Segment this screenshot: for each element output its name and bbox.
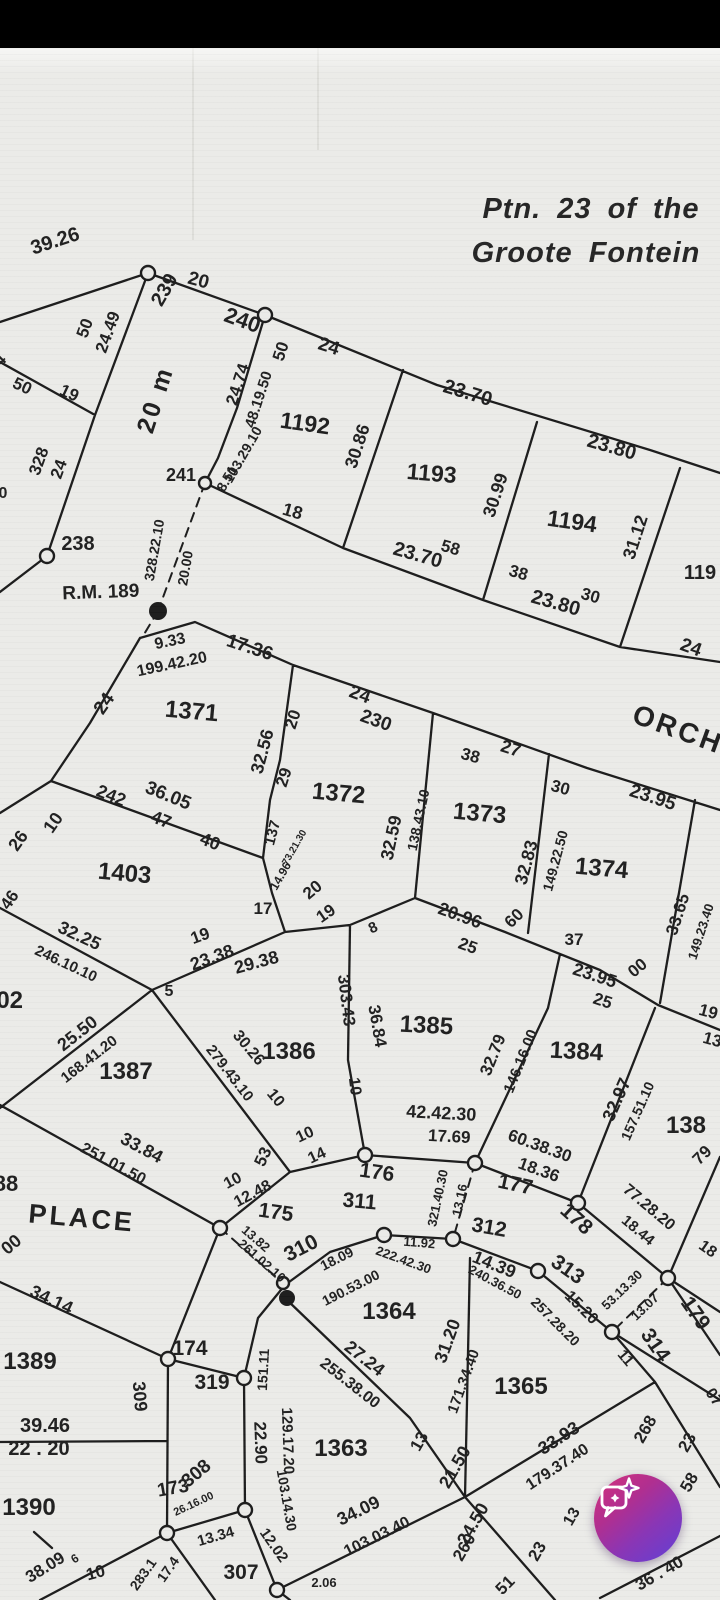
survey-stamp-dot	[279, 1290, 295, 1306]
parcel-number-label: 1385	[399, 1011, 454, 1041]
parcel-number-label: 1390	[2, 1494, 55, 1521]
parcel-number-label: 1387	[99, 1058, 152, 1085]
dimension-label: 17.69	[428, 1126, 471, 1147]
beacon-number-label: 238	[61, 533, 94, 555]
plan-title-line2: Groote Fontein	[472, 237, 701, 269]
reference-mark-dot	[149, 602, 167, 620]
dimension-label: 39.46	[20, 1415, 70, 1437]
assistant-fab[interactable]	[594, 1474, 682, 1562]
beacon-number-label: 241	[166, 465, 196, 485]
parcel-number-label: 1384	[549, 1037, 604, 1067]
parcel-number-label: 402	[0, 987, 23, 1014]
parcel-number-label: 1193	[406, 458, 458, 488]
dimension-label: 0	[0, 485, 8, 502]
dimension-label: 2.06	[311, 1575, 336, 1590]
beacon-number-label: 309	[129, 1381, 152, 1413]
beacon-number-label: 307	[223, 1561, 258, 1584]
parcel-number-label: 1364	[362, 1298, 416, 1325]
dimension-label: 10	[345, 1077, 364, 1097]
parcel-number-label: 1371	[164, 696, 220, 728]
dimension-label: 22.90	[250, 1421, 270, 1464]
status-bar	[0, 0, 720, 48]
parcel-number-label: 1372	[311, 778, 367, 810]
dimension-label: 129.17.20	[278, 1407, 297, 1474]
beacon-number-label: 319	[194, 1371, 229, 1394]
chat-sparkle-icon	[594, 1474, 642, 1522]
parcel-number-label: 1403	[97, 858, 153, 890]
parcel-number-label: 88	[0, 1171, 18, 1196]
dimension-label: 37	[565, 930, 584, 949]
dimension-label: R.M. 189	[62, 581, 140, 605]
beacon-number-label: 174	[172, 1337, 207, 1360]
parcel-number-label: 1386	[262, 1038, 315, 1065]
beacon-number-label: 175	[257, 1199, 295, 1227]
dimension-label: 22 . 20	[8, 1438, 69, 1460]
dimension-label: 5	[165, 983, 174, 1000]
beacon-number-label: 176	[358, 1159, 396, 1187]
dimension-label: 17	[254, 899, 273, 918]
beacon-number-label: 311	[342, 1189, 378, 1215]
parcel-number-label: 1365	[494, 1373, 547, 1400]
plan-title-line1: Ptn. 23 of the	[482, 193, 699, 225]
survey-map: Ptn. 23 of the Groote Fontein	[0, 0, 720, 1600]
dimension-label: 151.11	[254, 1348, 272, 1391]
parcel-number-label: 1363	[314, 1435, 367, 1462]
phone-screen: Ptn. 23 of the Groote Fontein	[0, 0, 720, 1600]
dimension-label: 11.92	[403, 1234, 436, 1252]
parcel-number-label: 138	[666, 1112, 706, 1139]
parcel-number-label: 1389	[3, 1348, 56, 1375]
parcel-number-label: 1374	[574, 853, 630, 885]
parcel-number-label: 1373	[452, 798, 508, 830]
dimension-label: 42.42.30	[406, 1101, 477, 1125]
parcel-number-label: 119	[684, 562, 716, 584]
